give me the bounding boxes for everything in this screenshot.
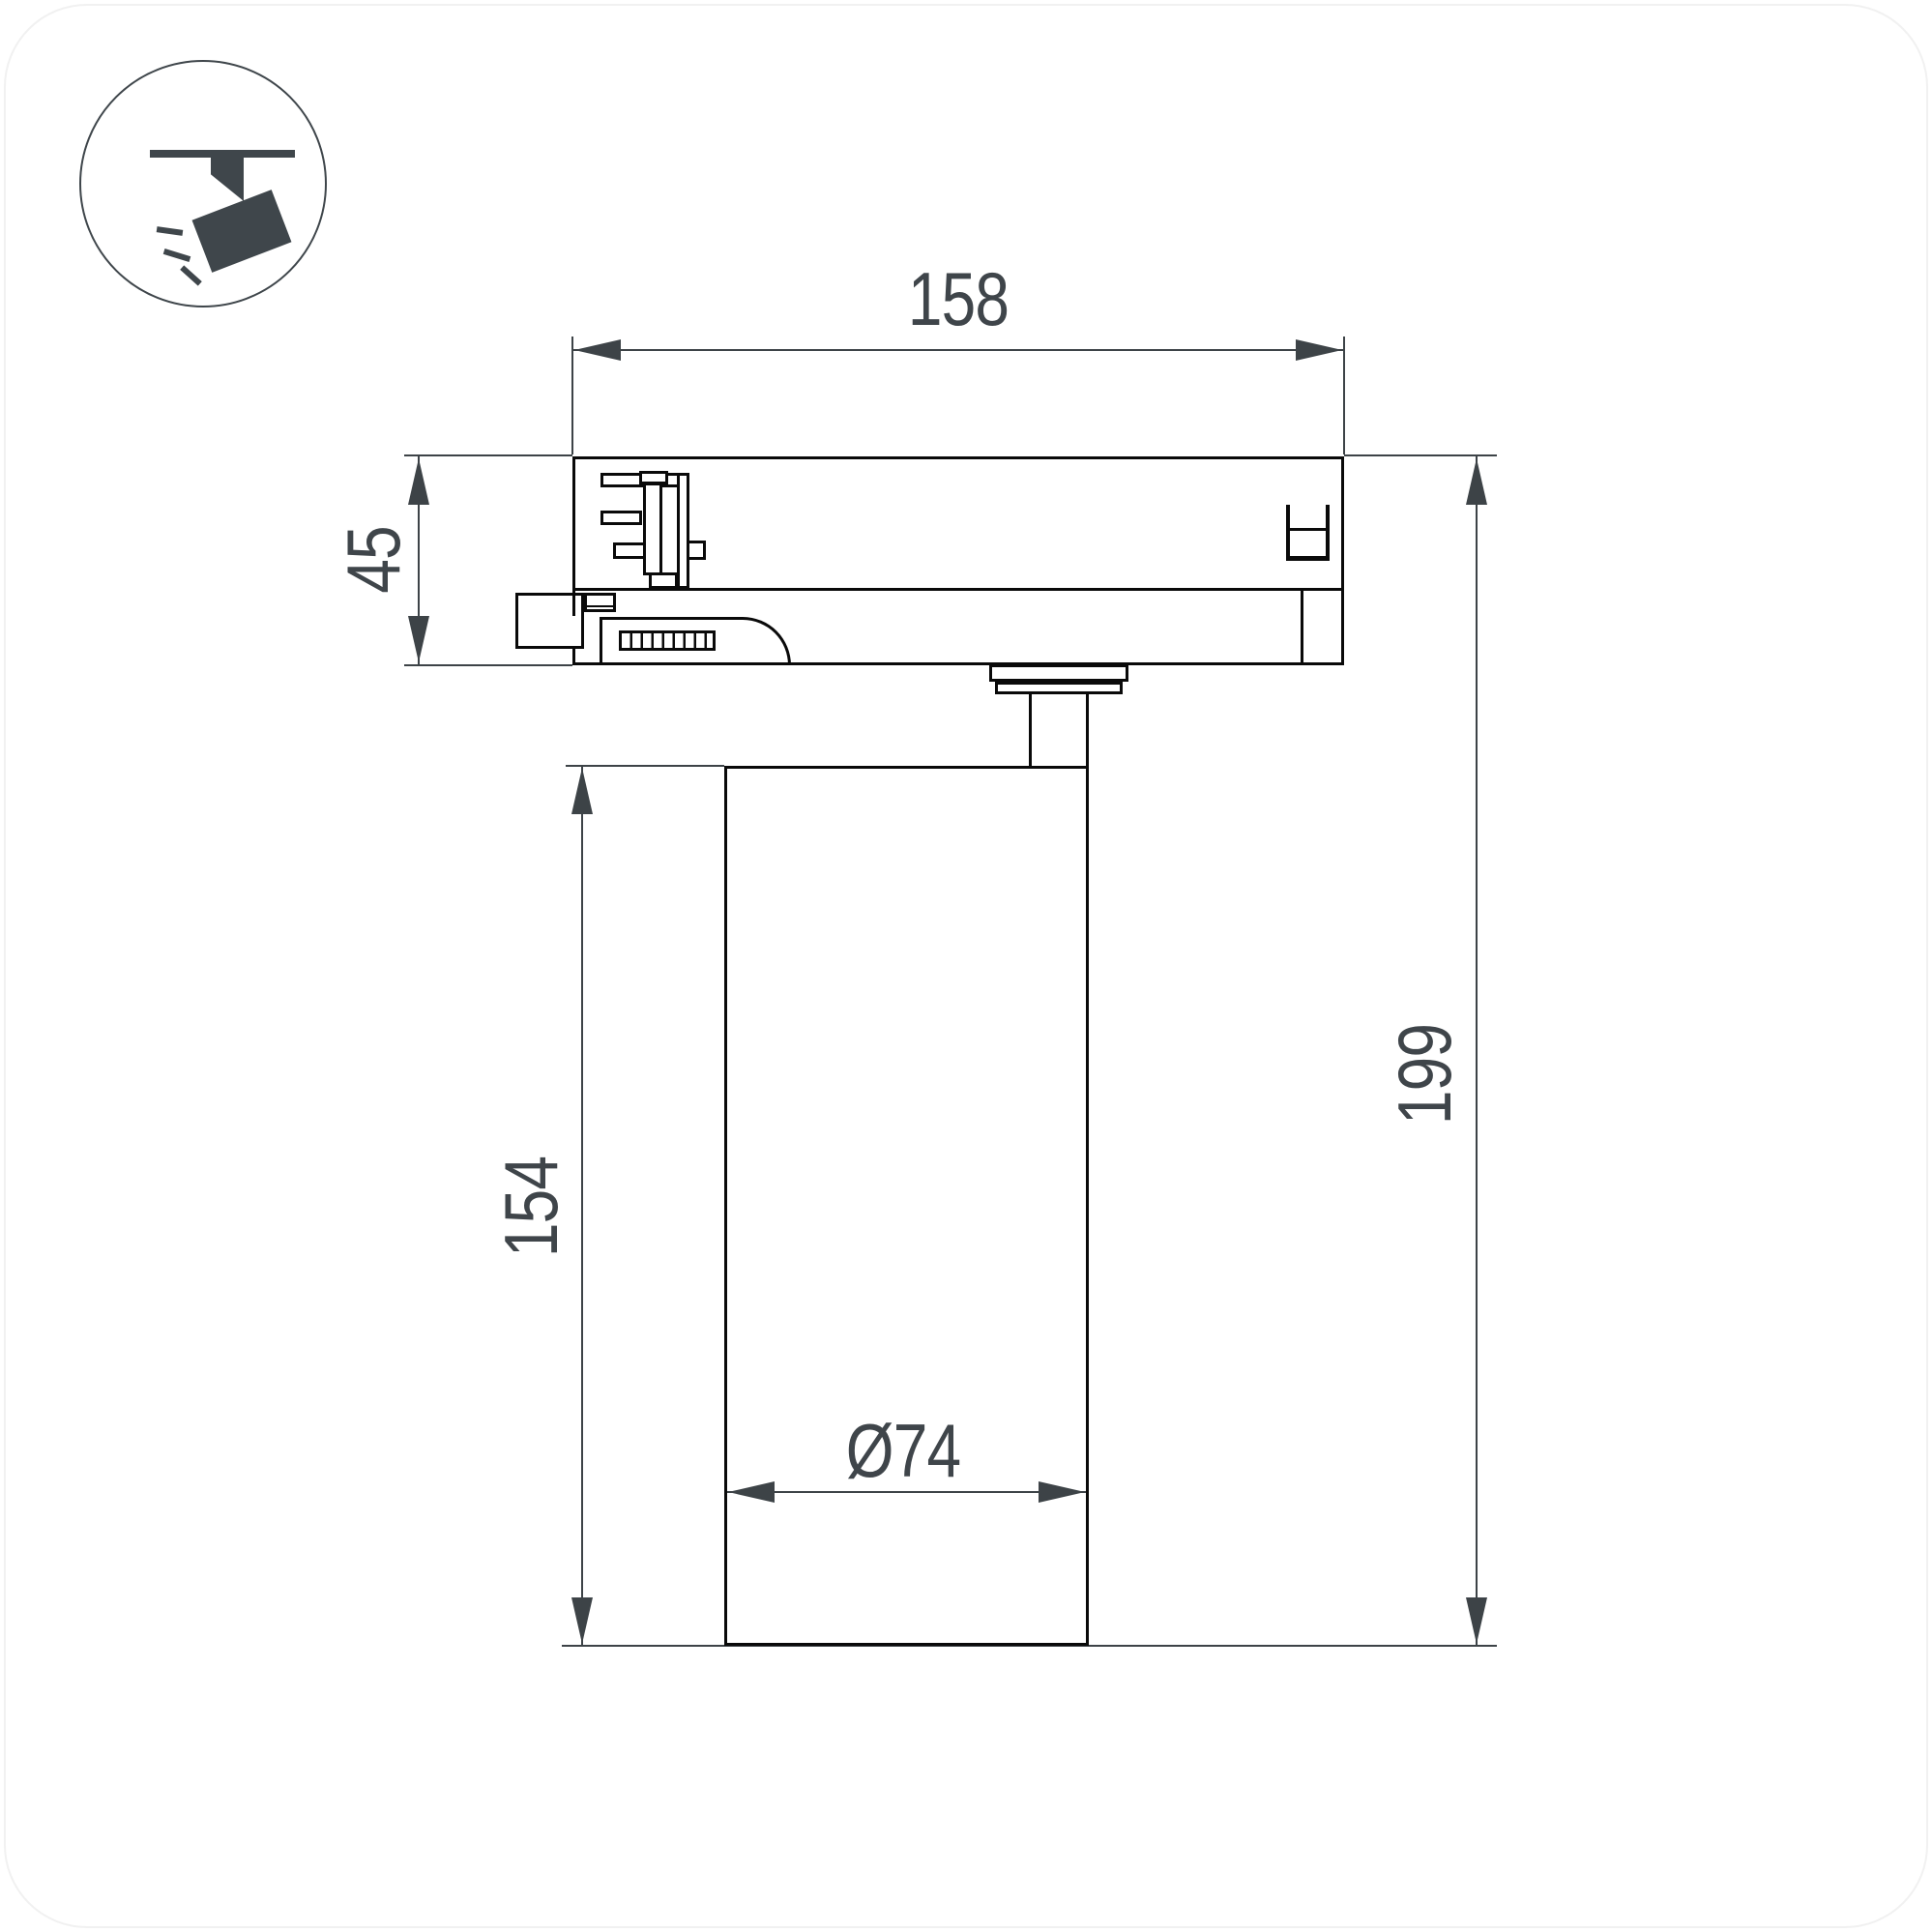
dim-154-ext-top bbox=[566, 765, 724, 767]
dim-45-arrow-down bbox=[408, 616, 429, 662]
dim-74-label: Ø74 bbox=[784, 1413, 1022, 1488]
icon-track-bar bbox=[150, 150, 295, 158]
contact-prong-right bbox=[687, 541, 706, 560]
adapter-slider-hatch bbox=[619, 630, 716, 651]
dim-45-ext-top bbox=[404, 454, 572, 456]
track-spotlight-icon bbox=[79, 60, 327, 307]
dim-154-line bbox=[581, 766, 583, 1646]
icon-track-stem bbox=[211, 157, 244, 201]
icon-spot-body bbox=[192, 190, 292, 273]
dim-158-label: 158 bbox=[879, 261, 1038, 337]
pedestal-step-lower bbox=[995, 682, 1123, 694]
contact-pin-cap bbox=[639, 471, 668, 484]
contact-pin bbox=[643, 483, 662, 575]
latch-small-box bbox=[584, 593, 616, 612]
dim-154-arrow-down bbox=[571, 1597, 593, 1644]
u-clip-rung bbox=[1289, 528, 1327, 531]
dim-158-ext-left bbox=[571, 337, 573, 454]
dim-45-ext-bottom bbox=[404, 664, 572, 666]
dim-158-ext-right bbox=[1343, 337, 1345, 454]
dim-74-arrow-right bbox=[1039, 1481, 1085, 1503]
dimension-drawing-canvas: 158 45 199 154 Ø74 bbox=[0, 0, 1932, 1932]
dim-199-line bbox=[1476, 456, 1478, 1646]
lamp-cylinder-body bbox=[724, 766, 1089, 1646]
adapter-u-clip bbox=[1286, 505, 1330, 561]
contact-prong-middle bbox=[600, 511, 642, 525]
pedestal-step-upper bbox=[989, 664, 1128, 682]
latch-wall-segment bbox=[572, 593, 575, 616]
icon-light-ray bbox=[163, 249, 191, 262]
adapter-right-column-line bbox=[1301, 588, 1303, 665]
icon-light-ray bbox=[157, 226, 184, 236]
dim-158-line bbox=[572, 349, 1344, 351]
latch-small-box-inner-line bbox=[587, 605, 613, 607]
dim-199-arrow-down bbox=[1466, 1597, 1487, 1644]
lamp-stem bbox=[1029, 691, 1089, 766]
dim-158-arrow-left bbox=[574, 339, 621, 361]
dim-45-arrow-up bbox=[408, 458, 429, 505]
dim-199-ext-top bbox=[1344, 454, 1497, 456]
dim-154-label: 154 bbox=[493, 1112, 569, 1303]
dim-199-arrow-up bbox=[1466, 458, 1487, 505]
dim-158-arrow-right bbox=[1296, 339, 1342, 361]
dim-199-label: 199 bbox=[1387, 980, 1462, 1170]
dim-45-label: 45 bbox=[336, 481, 411, 639]
icon-light-ray bbox=[180, 265, 202, 285]
contact-prong-lower bbox=[613, 542, 646, 559]
dim-74-arrow-left bbox=[728, 1481, 775, 1503]
dim-154-arrow-up bbox=[571, 768, 593, 814]
contact-foot bbox=[649, 572, 678, 589]
contact-side-wall bbox=[677, 473, 689, 589]
